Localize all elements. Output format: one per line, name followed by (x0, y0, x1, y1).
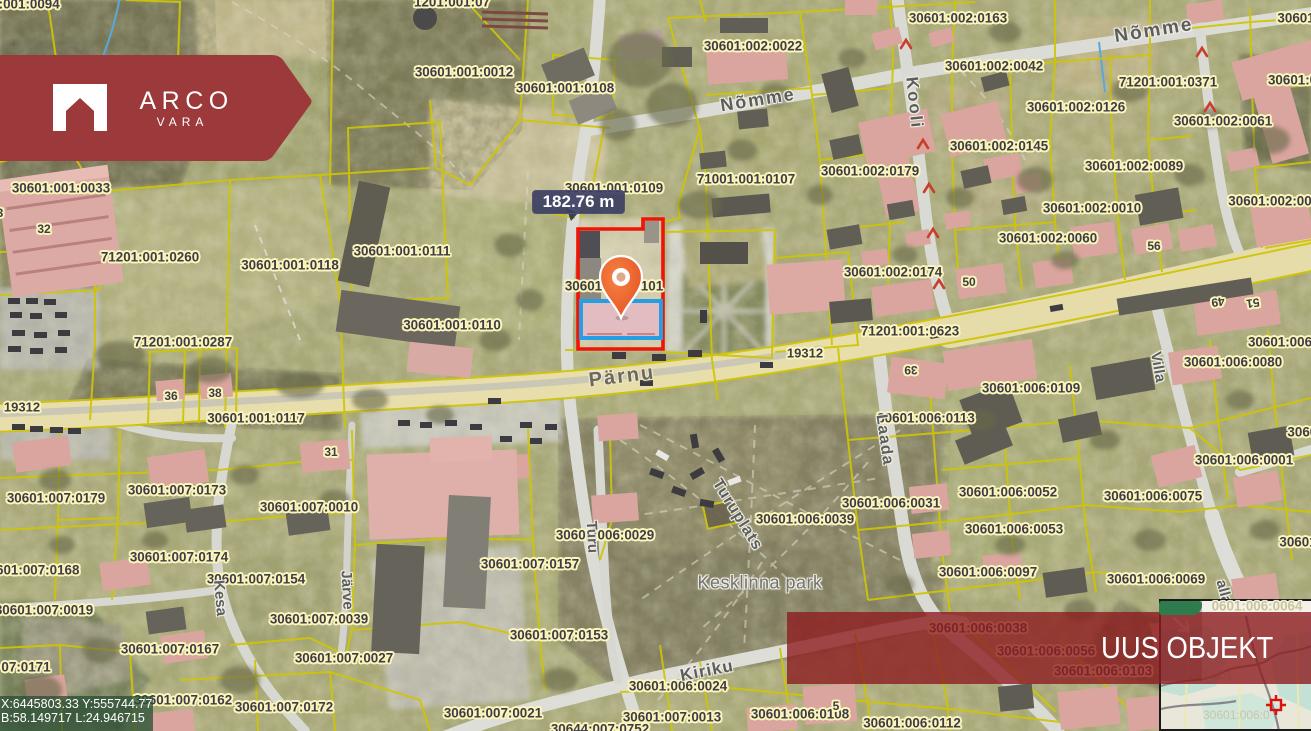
svg-text:30601:006:0: 30601:006:0 (1203, 708, 1270, 722)
